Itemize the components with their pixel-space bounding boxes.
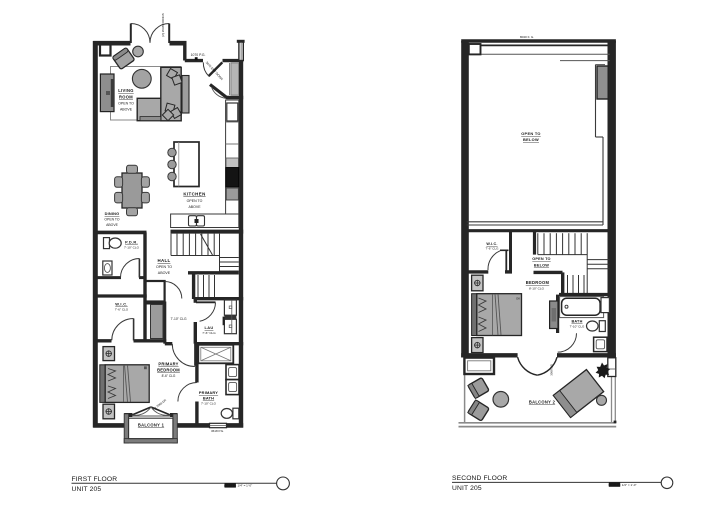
svg-text:1070 P.G.: 1070 P.G.	[191, 53, 206, 57]
svg-text:8'-10" CLG: 8'-10" CLG	[529, 287, 545, 291]
svg-text:(2) 2068 DOORS: (2) 2068 DOORS	[161, 13, 165, 37]
svg-text:BEDROOM: BEDROOM	[526, 280, 550, 285]
svg-text:7'-6" CLG: 7'-6" CLG	[486, 247, 500, 251]
svg-text:PRIMARY: PRIMARY	[199, 390, 218, 395]
svg-text:DINING: DINING	[105, 211, 120, 216]
svg-text:KITCHEN: KITCHEN	[183, 192, 205, 197]
svg-text:ABOVE: ABOVE	[188, 205, 201, 209]
svg-text:LAU: LAU	[205, 325, 214, 330]
svg-text:7'-10" CLG: 7'-10" CLG	[201, 402, 217, 406]
svg-text:BALCONY 1: BALCONY 1	[138, 422, 165, 427]
svg-text:3618 P.G.: 3618 P.G.	[211, 429, 224, 433]
svg-text:BALCONY 2: BALCONY 2	[529, 400, 556, 405]
svg-text:ABOVE: ABOVE	[158, 271, 171, 275]
svg-text:ABOVE: ABOVE	[120, 108, 133, 112]
svg-text:BATH: BATH	[203, 396, 214, 401]
svg-text:1/4" = 1'-0": 1/4" = 1'-0"	[622, 483, 637, 487]
svg-text:SCALE:: SCALE:	[224, 484, 236, 488]
svg-text:OPEN TO: OPEN TO	[104, 218, 119, 222]
svg-text:OPEN TO: OPEN TO	[521, 131, 541, 136]
svg-text:P.D.R.: P.D.R.	[125, 240, 138, 245]
svg-text:LIVING: LIVING	[118, 88, 133, 93]
svg-text:1/4" = 1'-0": 1/4" = 1'-0"	[238, 484, 253, 488]
svg-text:OPEN TO: OPEN TO	[187, 199, 203, 203]
svg-text:7'-10" CLG: 7'-10" CLG	[170, 317, 187, 321]
svg-text:FIRST FLOOR: FIRST FLOOR	[72, 476, 118, 483]
svg-text:PRIMARY: PRIMARY	[158, 362, 178, 367]
svg-text:BELOW: BELOW	[534, 264, 549, 268]
svg-text:OPEN TO: OPEN TO	[532, 257, 550, 261]
svg-text:UNIT 205: UNIT 205	[72, 486, 102, 493]
svg-text:OPEN TO: OPEN TO	[118, 102, 134, 106]
svg-text:ROOM: ROOM	[119, 95, 133, 100]
svg-text:7'-10" CLG: 7'-10" CLG	[570, 325, 585, 329]
svg-text:3068 DR: 3068 DR	[550, 364, 554, 375]
svg-text:UNIT 205: UNIT 205	[452, 485, 482, 492]
svg-text:7'-10" CLG: 7'-10" CLG	[124, 246, 140, 250]
svg-text:OK: OK	[516, 297, 520, 301]
svg-text:ABOVE: ABOVE	[106, 223, 118, 227]
svg-text:7'-6" CLG: 7'-6" CLG	[115, 308, 129, 312]
svg-text:BATH: BATH	[571, 320, 582, 324]
svg-text:8040 F. G.: 8040 F. G.	[520, 35, 534, 39]
svg-text:SECOND FLOOR: SECOND FLOOR	[452, 475, 507, 482]
svg-text:W.I.C.: W.I.C.	[115, 302, 127, 307]
svg-text:SCALE:: SCALE:	[608, 483, 620, 487]
svg-text:8'-6" CLG: 8'-6" CLG	[162, 374, 176, 378]
svg-text:HALL: HALL	[158, 258, 171, 263]
svg-text:BEDROOM: BEDROOM	[157, 368, 180, 373]
svg-text:W.I.C.: W.I.C.	[486, 242, 497, 246]
svg-text:7'-6" CLG: 7'-6" CLG	[202, 331, 216, 335]
svg-text:OPEN TO: OPEN TO	[156, 265, 172, 269]
svg-text:BELOW: BELOW	[523, 137, 539, 142]
